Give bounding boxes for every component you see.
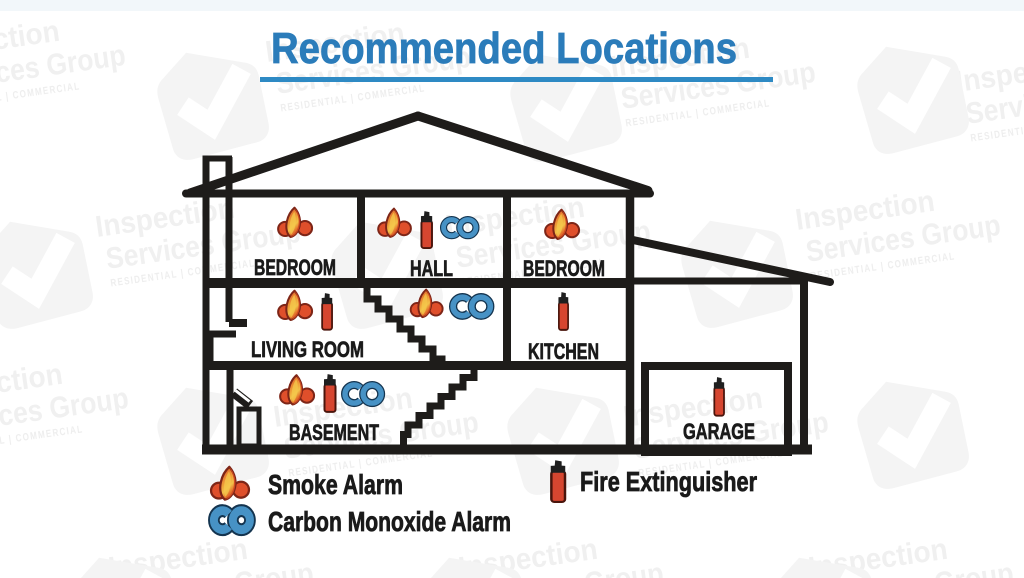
svg-text:BASEMENT: BASEMENT [289,420,379,445]
svg-text:GARAGE: GARAGE [683,419,755,444]
svg-text:Carbon Monoxide Alarm: Carbon Monoxide Alarm [268,506,511,537]
svg-text:Fire Extinguisher: Fire Extinguisher [580,466,757,497]
svg-text:HALL: HALL [410,256,453,281]
svg-text:BEDROOM: BEDROOM [523,256,605,281]
svg-text:KITCHEN: KITCHEN [528,339,599,364]
svg-text:BEDROOM: BEDROOM [254,255,336,280]
svg-text:Recommended Locations: Recommended Locations [271,24,737,73]
svg-text:Smoke Alarm: Smoke Alarm [268,469,403,500]
svg-text:LIVING ROOM: LIVING ROOM [251,337,364,362]
